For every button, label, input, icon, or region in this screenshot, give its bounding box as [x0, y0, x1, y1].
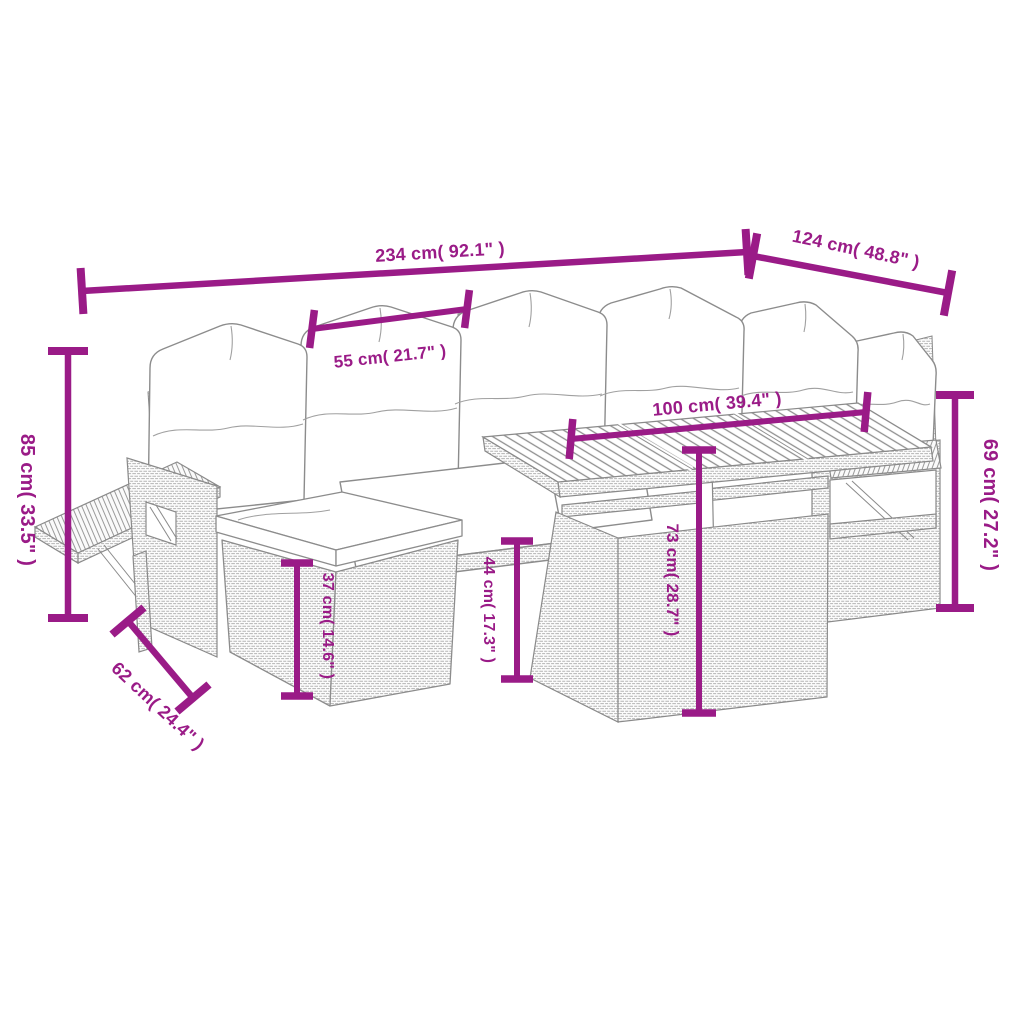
dim-line-back-height: [48, 351, 88, 618]
dim-label-seat-height: 44 cm( 17.3" ): [474, 490, 502, 730]
left-arm-module: [127, 458, 217, 657]
footstool-body-right: [330, 540, 458, 706]
dim-label-table-height: 73 cm( 28.7" ): [658, 460, 686, 700]
product-dimension-diagram: 234 cm( 92.1" ) 124 cm( 48.8" ) 55 cm( 2…: [0, 0, 1024, 1024]
furniture-line-art: [0, 0, 1024, 1024]
dim-label-footstool-height: 37 cm( 14.6" ): [313, 506, 341, 746]
dim-label-arm-height: 69 cm( 27.2" ): [976, 385, 1004, 625]
dim-line-arm-height: [936, 395, 974, 608]
dim-label-back-height: 85 cm( 33.5" ): [13, 380, 41, 620]
table-base-front: [618, 514, 828, 722]
